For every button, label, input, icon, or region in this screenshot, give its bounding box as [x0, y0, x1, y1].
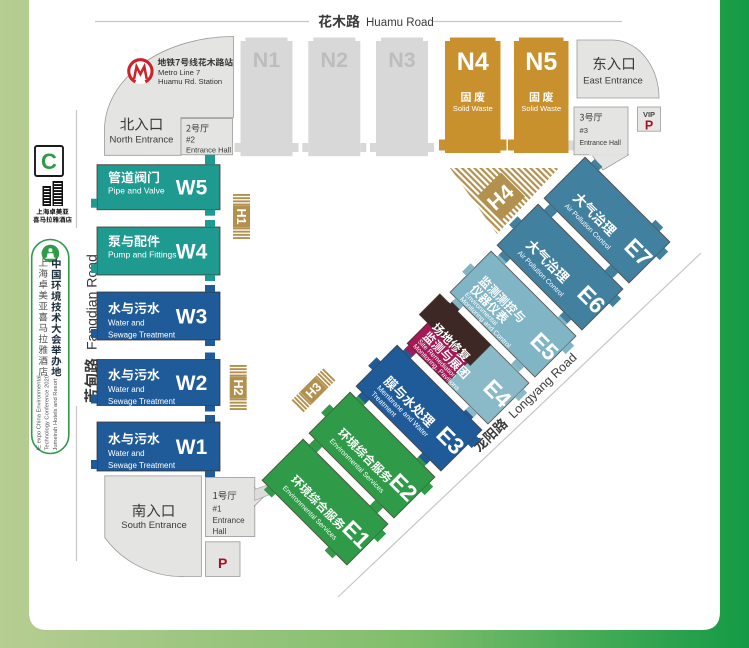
svg-text:#3: #3: [580, 126, 588, 135]
svg-text:H2: H2: [231, 380, 245, 396]
svg-text:N4: N4: [457, 48, 489, 76]
svg-text:W1: W1: [176, 436, 208, 459]
svg-text:Entrance: Entrance: [213, 516, 246, 525]
svg-text:Metro Line 7: Metro Line 7: [158, 68, 200, 77]
svg-text:N5: N5: [525, 48, 557, 76]
svg-text:W4: W4: [176, 241, 208, 264]
svg-text:C: C: [41, 149, 57, 174]
svg-text:East Entrance: East Entrance: [583, 76, 643, 87]
svg-text:H1: H1: [234, 209, 248, 225]
svg-text:N2: N2: [321, 48, 349, 72]
svg-text:Huamu Road: Huamu Road: [366, 17, 434, 29]
svg-text:Water and: Water and: [108, 385, 145, 394]
svg-text:Pump and Fittings: Pump and Fittings: [108, 250, 177, 260]
svg-text:Sewage Treatment: Sewage Treatment: [108, 331, 176, 340]
svg-text:Entrance Hall: Entrance Hall: [580, 140, 622, 147]
svg-text:Pipe and Valve: Pipe and Valve: [108, 186, 165, 196]
svg-text:Jumeirah Hotels and Resort: Jumeirah Hotels and Resort: [53, 378, 59, 450]
svg-text:#2: #2: [186, 136, 195, 145]
svg-text:N3: N3: [388, 48, 416, 72]
svg-text:Solid Waste: Solid Waste: [521, 104, 561, 113]
svg-text:#1: #1: [213, 505, 222, 514]
svg-text:Water and: Water and: [108, 449, 145, 458]
svg-text:IE expo China Environmental: IE expo China Environmental: [37, 375, 43, 450]
svg-text:South Entrance: South Entrance: [121, 520, 187, 531]
svg-text:Water and: Water and: [108, 319, 145, 328]
svg-text:Solid Waste: Solid Waste: [453, 104, 493, 113]
svg-text:W5: W5: [176, 177, 208, 200]
svg-text:P: P: [218, 555, 227, 571]
svg-text:Technology Conference 2020: Technology Conference 2020: [45, 375, 51, 450]
svg-text:Sewage Treatment: Sewage Treatment: [108, 397, 176, 406]
svg-text:N1: N1: [253, 48, 281, 72]
svg-text:W2: W2: [176, 372, 208, 395]
svg-text:Hall: Hall: [213, 527, 227, 536]
svg-text:W3: W3: [176, 306, 208, 329]
svg-text:Entrance Hall: Entrance Hall: [186, 145, 231, 154]
svg-text:Sewage Treatment: Sewage Treatment: [108, 461, 176, 470]
svg-text:P: P: [645, 119, 653, 133]
svg-text:North Entrance: North Entrance: [110, 135, 174, 146]
svg-text:Huamu Rd. Station: Huamu Rd. Station: [158, 77, 222, 86]
